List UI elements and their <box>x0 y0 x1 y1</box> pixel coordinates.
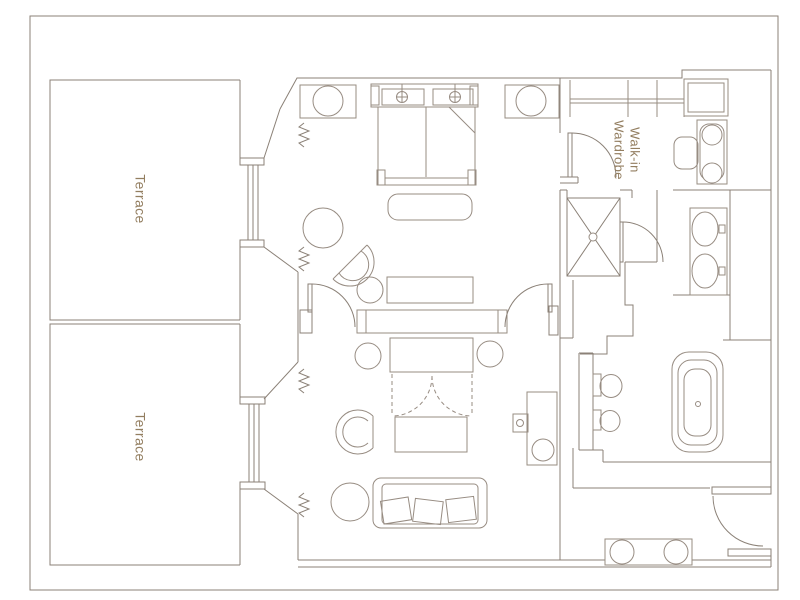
bidet <box>593 410 620 432</box>
entry-door <box>712 487 771 556</box>
shower-drain <box>589 233 597 241</box>
partition-door-left <box>308 284 355 327</box>
dresser <box>387 277 473 303</box>
sink-icon <box>692 254 718 288</box>
floor-plan-drawing <box>0 0 800 600</box>
terrace-south-label: Terrace <box>132 412 149 461</box>
faucet-icon <box>719 267 725 275</box>
exterior-walls <box>264 70 771 567</box>
dashed-cabinet-doors <box>392 374 472 416</box>
sofa-cushion <box>446 496 477 522</box>
tv-console <box>355 338 503 372</box>
side-table <box>357 277 383 303</box>
floor-plan: Terrace Terrace Walk-in Wardrobe <box>0 0 800 600</box>
dressing-table <box>674 120 727 184</box>
sink-icon <box>692 212 718 246</box>
double-sink-vanity <box>690 208 727 295</box>
nightstand-right <box>505 85 559 118</box>
desk-chair <box>532 439 554 461</box>
corner-cabinet <box>684 79 728 116</box>
sofa-cushion <box>413 498 444 524</box>
nightstand-left <box>300 85 356 118</box>
dressing-stool <box>674 137 698 169</box>
coffee-table <box>395 417 467 452</box>
tub-drain <box>696 402 701 407</box>
terrace-window-north <box>240 158 264 247</box>
sofa-cushion <box>380 497 411 524</box>
luggage-bench <box>605 539 692 565</box>
lounge-armchair <box>336 410 373 454</box>
toilet <box>593 374 622 398</box>
sofa <box>373 478 487 528</box>
partition-door-right <box>505 284 552 327</box>
sofa-side-table <box>331 483 369 521</box>
shower <box>567 198 620 276</box>
faucet-icon <box>719 225 725 233</box>
terrace-north-label: Terrace <box>132 174 149 223</box>
turned-down-sheet <box>449 107 475 133</box>
desk <box>513 392 557 465</box>
stool-right <box>477 341 503 367</box>
terrace-window-south <box>240 397 265 489</box>
wardrobe-rail <box>570 80 684 117</box>
bedroom-armchair <box>333 245 374 286</box>
walk-in-wardrobe-label: Walk-in Wardrobe <box>611 120 642 180</box>
double-bed <box>371 84 478 185</box>
reading-light-left <box>397 84 408 103</box>
bathtub <box>672 352 723 452</box>
reading-light-right <box>450 84 461 103</box>
desk-lamp-icon <box>513 414 528 432</box>
table-lamp-icon <box>313 86 343 116</box>
wardrobe-door <box>568 133 616 177</box>
table-lamp-icon <box>516 86 546 116</box>
stool-left <box>355 343 381 369</box>
partition-console <box>357 310 507 333</box>
bed-bench <box>388 194 472 220</box>
bedroom-round-table <box>303 208 343 248</box>
